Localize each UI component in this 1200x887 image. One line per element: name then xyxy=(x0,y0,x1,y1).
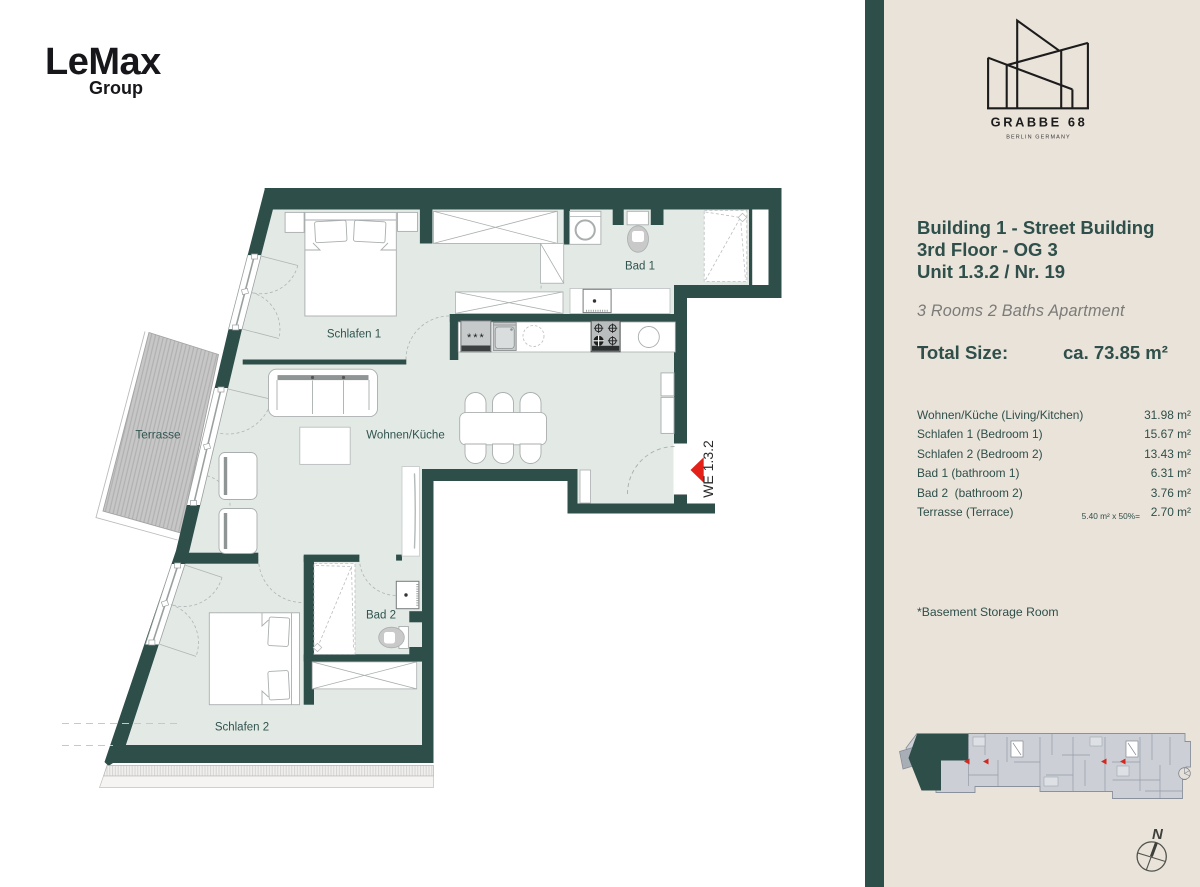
svg-text:N: N xyxy=(1152,826,1164,843)
svg-text:BERLIN GERMANY: BERLIN GERMANY xyxy=(1006,135,1071,141)
svg-text:WE 1.3.2: WE 1.3.2 xyxy=(700,440,716,498)
svg-text:***: *** xyxy=(467,332,486,344)
svg-text:Terrasse: Terrasse xyxy=(135,428,181,442)
svg-text:GRABBE 68: GRABBE 68 xyxy=(991,115,1088,130)
svg-text:Bad 1: Bad 1 xyxy=(625,261,655,273)
svg-text:Bad 2: Bad 2 xyxy=(366,610,396,622)
svg-text:Wohnen/Küche: Wohnen/Küche xyxy=(366,430,444,442)
svg-text:Schlafen 1: Schlafen 1 xyxy=(327,329,381,341)
svg-text:Schlafen 2: Schlafen 2 xyxy=(215,722,269,734)
